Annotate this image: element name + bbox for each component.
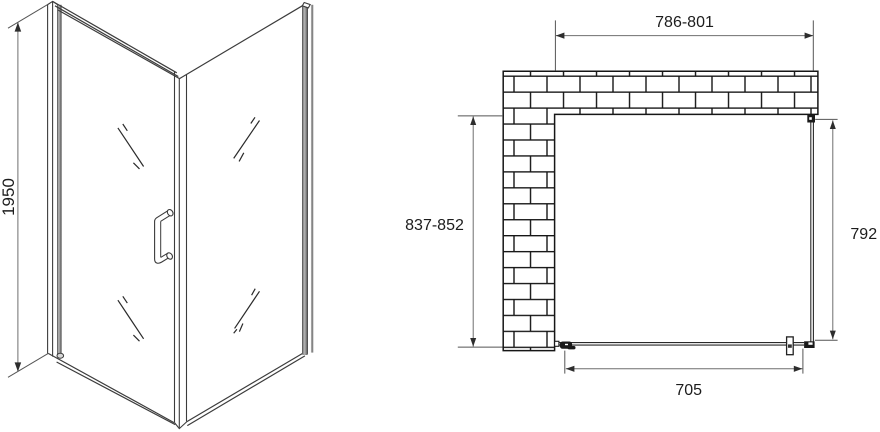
svg-text:705: 705	[675, 382, 702, 399]
svg-text:837-852: 837-852	[405, 217, 464, 234]
svg-text:1950: 1950	[0, 178, 18, 216]
svg-text:786-801: 786-801	[655, 14, 714, 31]
svg-text:792: 792	[850, 226, 877, 243]
